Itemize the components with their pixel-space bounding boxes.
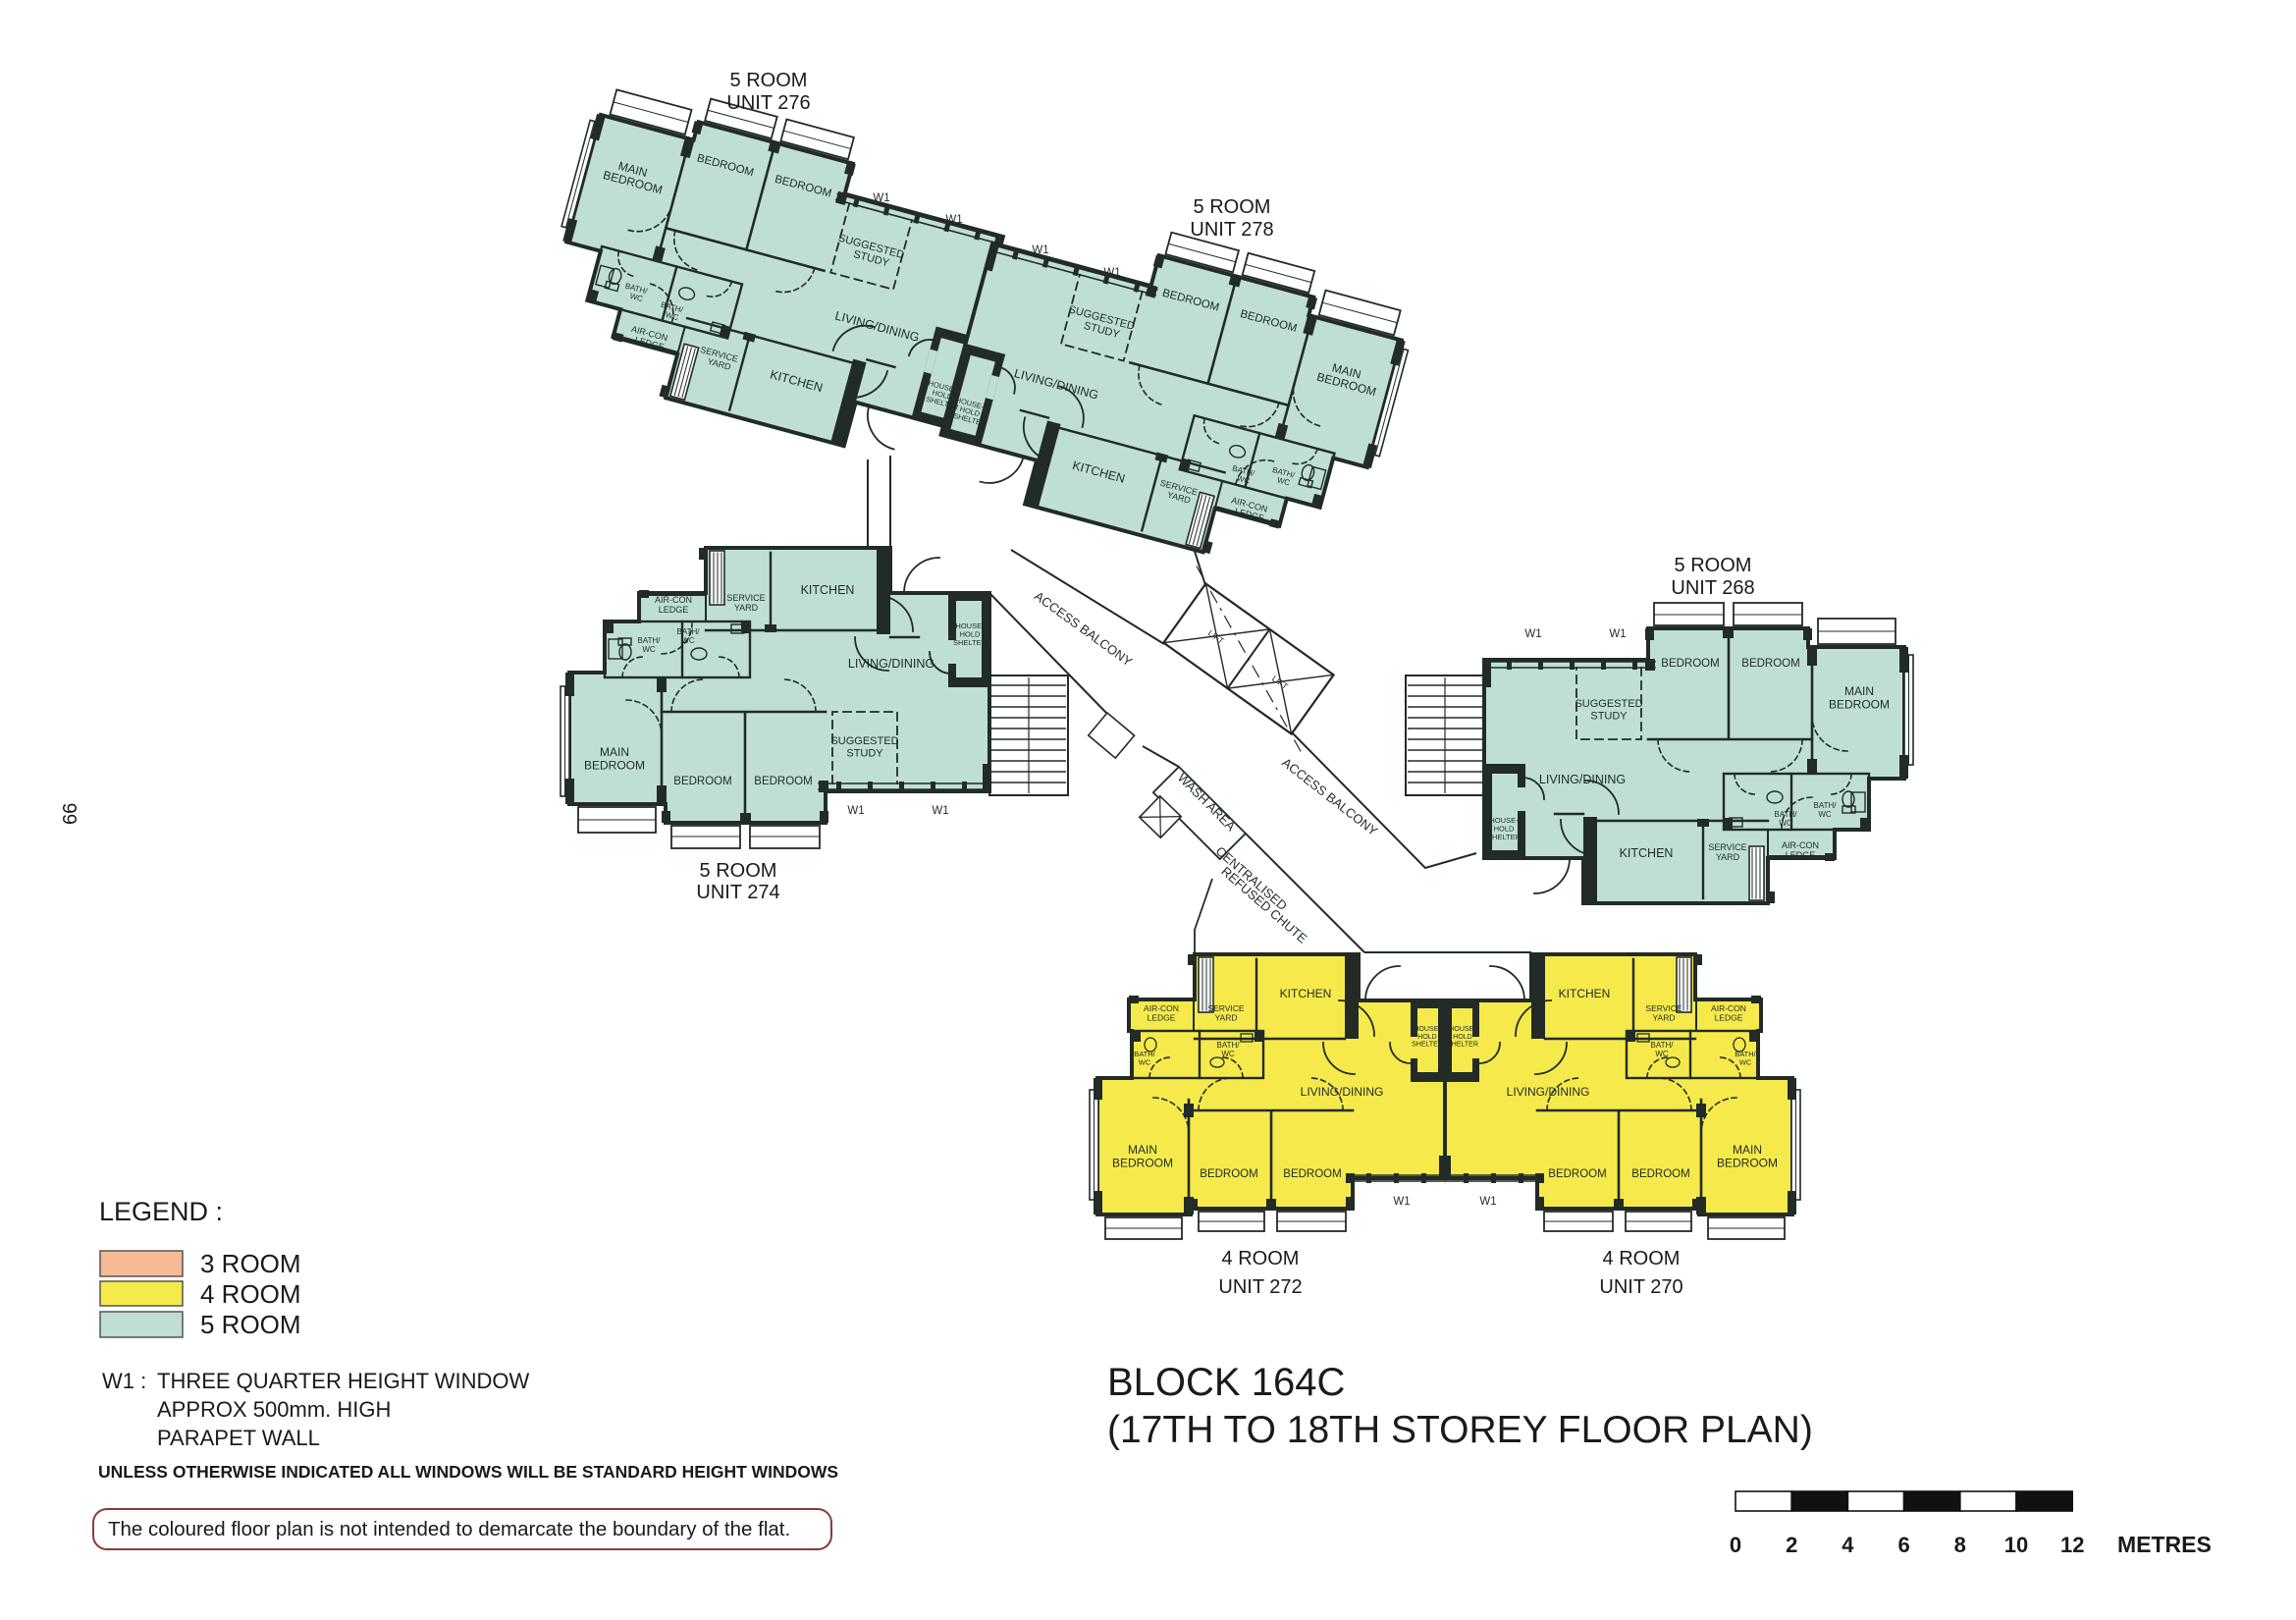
svg-text:METRES: METRES (2117, 1532, 2212, 1557)
svg-text:12: 12 (2060, 1533, 2084, 1557)
svg-text:BATH/: BATH/ (1814, 801, 1838, 810)
svg-text:BEDROOM: BEDROOM (1661, 658, 1719, 670)
svg-text:WC: WC (642, 645, 656, 654)
svg-text:SHELTER: SHELTER (1412, 1042, 1443, 1049)
svg-text:WC: WC (1739, 1057, 1752, 1066)
svg-text:5 ROOM: 5 ROOM (700, 860, 777, 882)
svg-text:BLOCK 164C: BLOCK 164C (1107, 1361, 1345, 1404)
svg-text:LEDGE: LEDGE (1148, 1013, 1176, 1023)
svg-text:4 ROOM: 4 ROOM (1222, 1248, 1300, 1269)
svg-text:66: 66 (60, 803, 81, 825)
svg-text:UNLESS OTHERWISE INDICATED ALL: UNLESS OTHERWISE INDICATED ALL WINDOWS W… (98, 1462, 838, 1482)
svg-text:SERVICE: SERVICE (726, 593, 765, 603)
svg-text:5 ROOM: 5 ROOM (200, 1310, 301, 1339)
svg-text:STUDY: STUDY (846, 747, 883, 759)
svg-text:3 ROOM: 3 ROOM (200, 1249, 301, 1278)
svg-text:5 ROOM: 5 ROOM (1194, 196, 1271, 218)
svg-text:AIR-CON: AIR-CON (1782, 840, 1819, 850)
svg-text:HOLD: HOLD (1453, 1034, 1471, 1041)
svg-text:LIVING/DINING: LIVING/DINING (1507, 1085, 1590, 1099)
svg-text:W1: W1 (932, 805, 948, 817)
svg-text:8: 8 (1954, 1533, 1966, 1557)
svg-text:UNIT 272: UNIT 272 (1218, 1276, 1302, 1298)
svg-text:HOLD: HOLD (1417, 1034, 1436, 1041)
svg-text:LEGEND :: LEGEND : (99, 1197, 223, 1226)
svg-text:4 ROOM: 4 ROOM (1603, 1248, 1681, 1269)
svg-text:WC: WC (1779, 819, 1792, 828)
svg-text:BEDROOM: BEDROOM (673, 776, 731, 787)
svg-text:W1: W1 (873, 192, 889, 204)
svg-text:BATH/: BATH/ (677, 627, 701, 636)
svg-text:HOUSE-: HOUSE- (1414, 1026, 1441, 1033)
svg-text:W1: W1 (1103, 267, 1120, 279)
svg-text:5 ROOM: 5 ROOM (1675, 555, 1752, 576)
svg-text:4: 4 (1842, 1533, 1854, 1557)
svg-text:10: 10 (2004, 1533, 2028, 1557)
svg-text:HOUSE-: HOUSE- (1449, 1026, 1476, 1033)
svg-text:WC: WC (1139, 1057, 1151, 1066)
svg-text:SUGGESTED: SUGGESTED (1575, 698, 1642, 710)
svg-text:UNIT 274: UNIT 274 (696, 882, 779, 903)
svg-text:W1: W1 (1393, 1196, 1410, 1208)
svg-text:BEDROOM: BEDROOM (584, 758, 645, 772)
svg-text:LIVING/DINING: LIVING/DINING (1301, 1085, 1384, 1099)
svg-text:WC: WC (1655, 1050, 1669, 1058)
svg-text:6: 6 (1897, 1533, 1909, 1557)
svg-text:BEDROOM: BEDROOM (1741, 658, 1799, 670)
svg-text:W1: W1 (847, 805, 864, 817)
svg-text:SHELTER: SHELTER (1447, 1042, 1478, 1049)
svg-text:MAIN: MAIN (600, 745, 629, 759)
svg-text:UNIT 268: UNIT 268 (1671, 577, 1754, 599)
svg-text:UNIT 276: UNIT 276 (726, 92, 810, 114)
svg-text:PARAPET WALL: PARAPET WALL (157, 1426, 320, 1450)
svg-text:BEDROOM: BEDROOM (1829, 697, 1890, 711)
svg-text:BEDROOM: BEDROOM (1200, 1168, 1257, 1180)
svg-text:KITCHEN: KITCHEN (1280, 987, 1332, 1000)
svg-text:AIR-CON: AIR-CON (655, 595, 692, 605)
svg-text:KITCHEN: KITCHEN (1559, 987, 1611, 1000)
svg-text:SERVICE: SERVICE (1207, 1003, 1244, 1013)
svg-text:BATH/: BATH/ (1651, 1041, 1675, 1050)
svg-text:SERVICE: SERVICE (1645, 1003, 1682, 1013)
svg-text:LEDGE: LEDGE (1786, 850, 1816, 860)
svg-text:BEDROOM: BEDROOM (1548, 1168, 1606, 1180)
svg-text:KITCHEN: KITCHEN (801, 583, 855, 597)
svg-text:BEDROOM: BEDROOM (1112, 1156, 1173, 1169)
svg-text:BATH/: BATH/ (1775, 810, 1798, 819)
svg-text:W1: W1 (1032, 244, 1048, 256)
svg-text:LEDGE: LEDGE (1715, 1013, 1743, 1023)
svg-text:(17TH TO 18TH STOREY FLOOR PLA: (17TH TO 18TH STOREY FLOOR PLAN) (1107, 1409, 1813, 1451)
svg-text:YARD: YARD (1653, 1013, 1676, 1023)
svg-text:5 ROOM: 5 ROOM (730, 70, 808, 91)
svg-text:W1: W1 (1524, 628, 1541, 640)
svg-text:BEDROOM: BEDROOM (1283, 1168, 1341, 1180)
svg-text:W1: W1 (1609, 628, 1626, 640)
svg-text:BATH/: BATH/ (638, 636, 662, 645)
svg-text:W1: W1 (945, 214, 962, 226)
svg-text:UNIT 270: UNIT 270 (1599, 1276, 1682, 1298)
svg-text:LEDGE: LEDGE (659, 605, 689, 615)
svg-text:0: 0 (1730, 1533, 1741, 1557)
svg-text:WC: WC (681, 636, 695, 645)
svg-text:THREE QUARTER HEIGHT WINDOW: THREE QUARTER HEIGHT WINDOW (157, 1369, 530, 1393)
svg-text:SUGGESTED: SUGGESTED (830, 735, 898, 747)
svg-text:STUDY: STUDY (1590, 710, 1628, 722)
svg-text:BATH/: BATH/ (1217, 1041, 1241, 1050)
svg-text:BEDROOM: BEDROOM (1717, 1156, 1778, 1169)
svg-text:YARD: YARD (1716, 852, 1740, 862)
svg-text:YARD: YARD (734, 603, 759, 613)
svg-text:SHELTER: SHELTER (953, 638, 988, 647)
svg-text:BEDROOM: BEDROOM (754, 776, 812, 787)
svg-text:LIVING/DINING: LIVING/DINING (848, 657, 934, 671)
svg-text:UNIT 278: UNIT 278 (1190, 219, 1273, 241)
svg-text:APPROX 500mm. HIGH: APPROX 500mm. HIGH (157, 1397, 391, 1422)
svg-text:SHELTER: SHELTER (1487, 833, 1522, 841)
svg-text:AIR-CON: AIR-CON (1711, 1003, 1746, 1013)
svg-text:4 ROOM: 4 ROOM (200, 1279, 301, 1309)
svg-text:2: 2 (1786, 1533, 1797, 1557)
svg-text:W1: W1 (1479, 1196, 1496, 1208)
svg-text:MAIN: MAIN (1733, 1143, 1762, 1157)
svg-text:KITCHEN: KITCHEN (1620, 846, 1674, 860)
svg-text:WC: WC (1221, 1050, 1235, 1058)
svg-text:YARD: YARD (1215, 1013, 1238, 1023)
svg-text:AIR-CON: AIR-CON (1144, 1003, 1179, 1013)
svg-text:WC: WC (1818, 810, 1832, 819)
svg-text:LIVING/DINING: LIVING/DINING (1539, 773, 1626, 786)
svg-text:BEDROOM: BEDROOM (1631, 1168, 1689, 1180)
svg-text:The coloured floor plan is not: The coloured floor plan is not intended … (108, 1518, 790, 1540)
svg-text:MAIN: MAIN (1844, 684, 1874, 698)
svg-text:SERVICE: SERVICE (1708, 842, 1746, 852)
svg-text:W1 :: W1 : (102, 1369, 146, 1393)
svg-text:MAIN: MAIN (1128, 1143, 1157, 1157)
